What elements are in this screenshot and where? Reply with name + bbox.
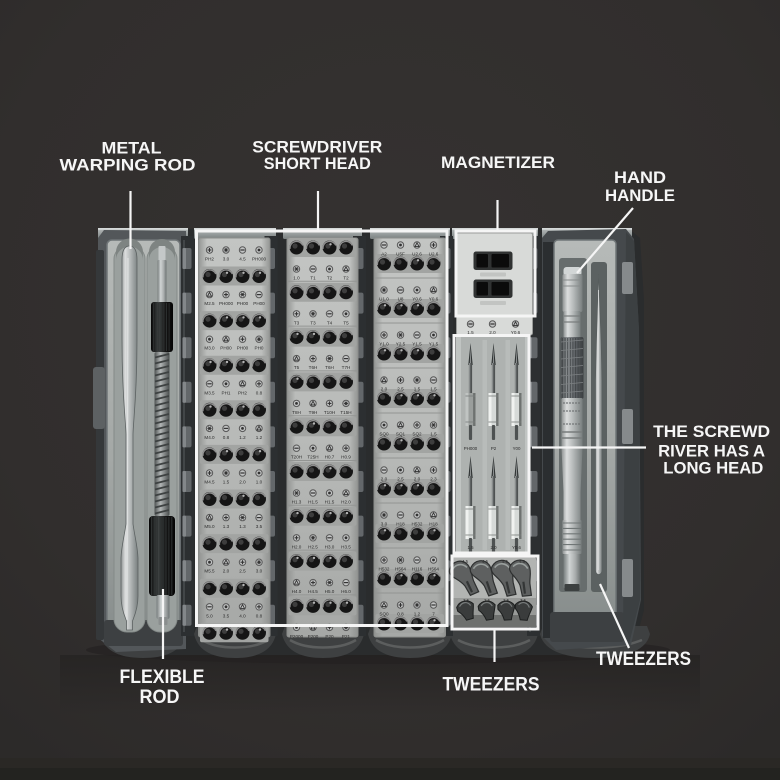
svg-text:PH1: PH1 [222,390,231,395]
svg-text:2.0: 2.0 [381,477,388,482]
svg-text:1.3: 1.3 [223,524,230,529]
svg-text:P20: P20 [325,634,334,639]
svg-text:RIVER HAS A: RIVER HAS A [658,443,765,461]
svg-text:T3: T3 [310,320,316,325]
svg-text:1.2: 1.2 [414,612,421,617]
svg-text:5.0: 5.0 [206,613,213,618]
svg-text:0.8: 0.8 [256,390,263,395]
svg-text:Y0.6: Y0.6 [429,297,439,302]
svg-text:PH00: PH00 [237,346,249,351]
svg-text:2.0: 2.0 [414,477,421,482]
svg-text:Y0.6: Y0.6 [412,297,422,302]
svg-text:H116: H116 [412,567,423,572]
svg-text:P21: P21 [342,634,351,639]
svg-text:PH000: PH000 [219,301,233,306]
svg-text:3.5: 3.5 [503,598,509,603]
svg-text:Y00: Y00 [513,446,521,451]
svg-text:P200: P200 [308,634,319,639]
svg-text:PH2: PH2 [238,390,247,395]
svg-text:T1: T1 [310,276,316,281]
svg-text:H532: H532 [379,567,390,572]
svg-text:2.0: 2.0 [490,545,497,550]
svg-text:3.5: 3.5 [256,524,263,529]
svg-text:M2.5: M2.5 [204,301,215,306]
svg-text:U5F: U5F [396,252,405,257]
svg-text:T20H: T20H [291,455,302,460]
svg-text:T6H: T6H [309,365,318,370]
svg-text:H564: H564 [395,567,406,572]
svg-text:H2.0: H2.0 [292,544,302,549]
svg-text:4.5: 4.5 [462,559,468,564]
svg-text:T3: T3 [294,320,300,325]
svg-text:T9H: T9H [309,410,318,415]
svg-text:M5.5: M5.5 [204,569,215,574]
svg-text:P2000: P2000 [290,634,304,639]
svg-text:H0.7: H0.7 [325,455,335,460]
svg-text:H18: H18 [429,522,438,527]
svg-text:1.2: 1.2 [239,435,246,440]
svg-text:3.0: 3.0 [256,569,263,574]
svg-text:Y1.5: Y1.5 [412,342,422,347]
svg-text:METAL: METAL [102,140,162,158]
svg-text:ROD: ROD [140,687,180,708]
svg-text:2.0: 2.0 [239,480,246,485]
svg-text:MAGNETIZER: MAGNETIZER [441,154,555,172]
svg-text:H18: H18 [396,522,405,527]
svg-text:U2.6: U2.6 [429,252,439,257]
svg-text:THE SCREWD: THE SCREWD [653,423,770,441]
svg-text:T7H: T7H [342,365,351,370]
svg-text:T10H: T10H [324,410,335,415]
svg-text:TWEEZERS: TWEEZERS [443,675,540,696]
svg-text:4.5: 4.5 [239,257,246,262]
svg-text:H2.5: H2.5 [308,544,318,549]
svg-text:2.0: 2.0 [223,569,230,574]
svg-text:1.2: 1.2 [256,435,263,440]
svg-text:4.0: 4.0 [239,613,246,618]
svg-text:PH00: PH00 [253,301,265,306]
svg-text:4.5: 4.5 [502,559,508,564]
svg-text:4.5: 4.5 [482,559,488,564]
svg-text:T5: T5 [343,320,349,325]
svg-text:T2: T2 [327,276,333,281]
svg-text:3.5: 3.5 [223,613,230,618]
svg-text:H532: H532 [412,522,423,527]
svg-text:H6.0: H6.0 [341,589,351,594]
svg-text:SCREWDRIVER: SCREWDRIVER [252,138,382,156]
svg-text:WARPING ROD: WARPING ROD [60,157,196,175]
svg-text:1.5: 1.5 [223,480,230,485]
svg-text:3.5: 3.5 [463,598,469,603]
svg-text:1.5: 1.5 [414,387,421,392]
svg-text:2.5: 2.5 [397,477,404,482]
svg-text:Y1.5: Y1.5 [429,342,439,347]
svg-text:H4.0: H4.0 [292,589,302,594]
svg-text:H1.5: H1.5 [308,500,318,505]
svg-text:1.3: 1.3 [239,524,246,529]
svg-text:H3.5: H3.5 [341,544,351,549]
svg-text:TWEEZERS: TWEEZERS [596,649,691,670]
svg-text:H5.0: H5.0 [325,589,335,594]
svg-text:H4.5: H4.5 [308,589,318,594]
svg-text:2.3: 2.3 [430,477,437,482]
svg-text:1.5: 1.5 [467,545,474,550]
svg-text:PH0: PH0 [255,346,264,351]
svg-text:0.8: 0.8 [397,612,404,617]
svg-text:T8H: T8H [292,410,301,415]
svg-text:LONG HEAD: LONG HEAD [663,460,763,478]
svg-text:Y2.5: Y2.5 [396,342,406,347]
svg-text:3.5: 3.5 [520,598,526,603]
svg-text:SHORT HEAD: SHORT HEAD [264,155,371,173]
svg-text:4.5: 4.5 [519,559,525,564]
svg-text:SQ0: SQ0 [379,612,389,617]
svg-text:H1.3: H1.3 [292,500,302,505]
svg-text:T4: T4 [327,320,333,325]
svg-text:0.8: 0.8 [223,435,230,440]
svg-text:U1.0: U1.0 [379,297,389,302]
svg-text:0.8: 0.8 [256,613,263,618]
svg-text:1.0: 1.0 [293,276,300,281]
svg-text:P2: P2 [491,446,497,451]
svg-text:1.5: 1.5 [430,387,437,392]
svg-text:T6H: T6H [325,365,334,370]
svg-text:T5: T5 [294,365,300,370]
svg-text:PH00: PH00 [220,346,232,351]
svg-text:PH000: PH000 [252,257,266,262]
svg-text:SQ1: SQ1 [396,432,406,437]
svg-text:1.0: 1.0 [256,480,263,485]
svg-text:U8: U8 [398,297,404,302]
svg-text:3.0: 3.0 [223,257,230,262]
svg-text:M5.0: M5.0 [204,524,215,529]
svg-text:2.0: 2.0 [381,387,388,392]
svg-text:HANDLE: HANDLE [605,187,675,205]
svg-text:A2: A2 [381,252,387,257]
svg-text:H1.5: H1.5 [325,500,335,505]
svg-text:U2.6: U2.6 [412,252,422,257]
svg-text:H3.0: H3.0 [325,544,335,549]
svg-text:1.5: 1.5 [430,432,437,437]
svg-text:2.5: 2.5 [239,569,246,574]
svg-text:PH2: PH2 [205,257,214,262]
svg-text:Y0.6: Y0.6 [512,545,522,550]
svg-text:M3.0: M3.0 [204,346,215,351]
svg-text:3.5: 3.5 [484,598,490,603]
svg-text:HAND: HAND [614,169,666,187]
svg-text:FLEXIBLE: FLEXIBLE [120,667,205,688]
svg-text:H564: H564 [428,567,439,572]
svg-text:M4.0: M4.0 [204,435,215,440]
svg-text:3.0: 3.0 [381,522,388,527]
svg-text:SQ0: SQ0 [379,432,389,437]
svg-text:T25H: T25H [307,455,318,460]
svg-text:Y1.0: Y1.0 [379,342,389,347]
svg-text:H2.0: H2.0 [341,500,351,505]
svg-text:M3.5: M3.5 [204,390,215,395]
svg-text:7: 7 [432,612,435,617]
svg-text:2.5: 2.5 [397,387,404,392]
svg-text:M4.5: M4.5 [204,480,215,485]
svg-text:T2: T2 [343,276,349,281]
svg-text:H0.9: H0.9 [341,455,351,460]
svg-text:T15H: T15H [340,410,351,415]
svg-text:SQ2: SQ2 [412,432,422,437]
svg-text:PH000: PH000 [464,446,478,451]
svg-text:PH00: PH00 [237,301,249,306]
